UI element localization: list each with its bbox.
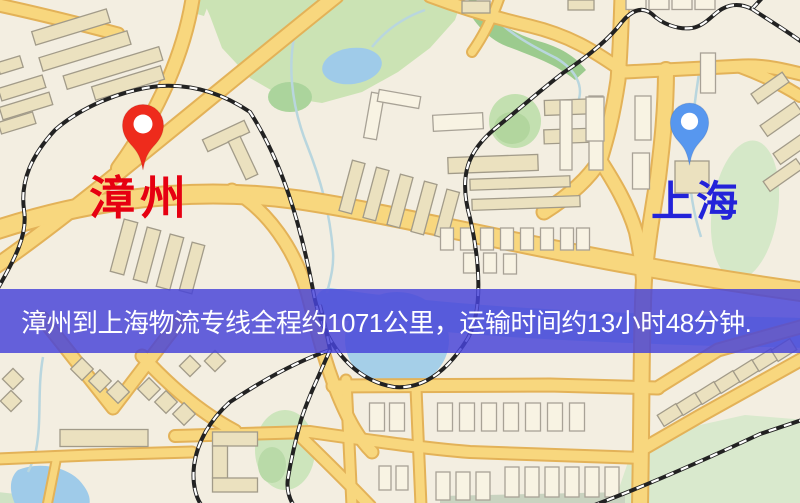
map-background (0, 0, 800, 503)
map-image: 漳州 上海 漳州到上海物流专线全程约1071公里，运输时间约13小时48分钟. (0, 0, 800, 503)
route-info-banner: 漳州到上海物流专线全程约1071公里，运输时间约13小时48分钟. (0, 289, 800, 353)
route-info-text: 漳州到上海物流专线全程约1071公里，运输时间约13小时48分钟. (21, 303, 751, 340)
